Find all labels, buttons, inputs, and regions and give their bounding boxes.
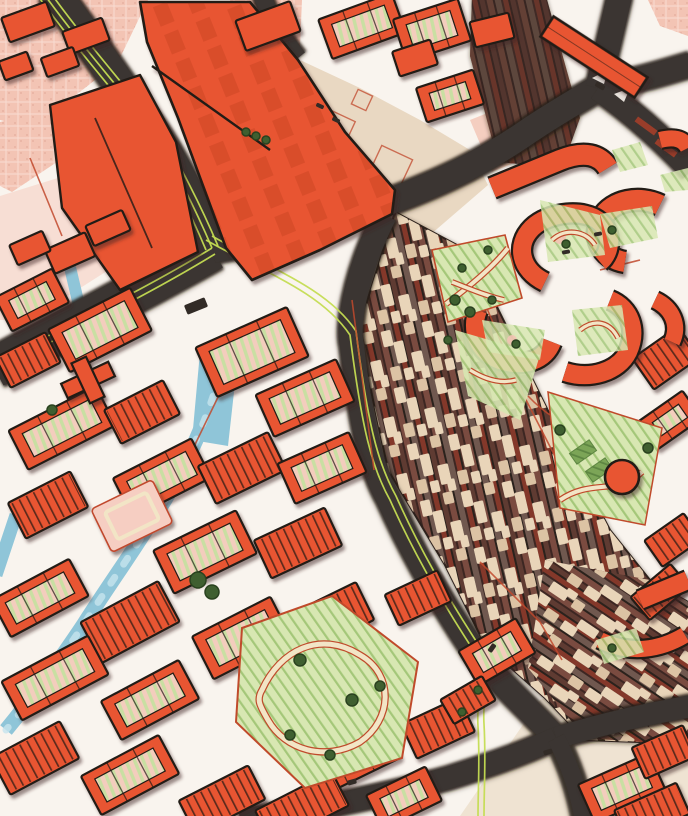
city-map-canvas[interactable] <box>0 0 688 816</box>
tree <box>643 443 653 453</box>
tree <box>47 405 57 415</box>
tree <box>512 340 520 348</box>
tree <box>474 686 482 694</box>
tree <box>190 572 206 588</box>
tree <box>608 644 616 652</box>
tree <box>252 132 260 140</box>
tree <box>444 336 452 344</box>
tree <box>346 694 358 706</box>
tree <box>325 750 335 760</box>
circle-building <box>605 460 639 494</box>
tree <box>458 708 466 716</box>
tree <box>458 264 466 272</box>
tree <box>488 296 496 304</box>
curved-building <box>660 138 688 148</box>
tree <box>242 128 250 136</box>
tree <box>555 425 565 435</box>
tree <box>465 307 475 317</box>
tree <box>450 295 460 305</box>
tree <box>262 136 270 144</box>
tree <box>562 240 570 248</box>
tree <box>285 730 295 740</box>
tree <box>608 226 616 234</box>
tree <box>294 654 306 666</box>
tree <box>484 246 492 254</box>
tree <box>205 585 219 599</box>
map-viewport[interactable]: Illustrated city map with station, railw… <box>0 0 688 816</box>
tree <box>375 681 385 691</box>
